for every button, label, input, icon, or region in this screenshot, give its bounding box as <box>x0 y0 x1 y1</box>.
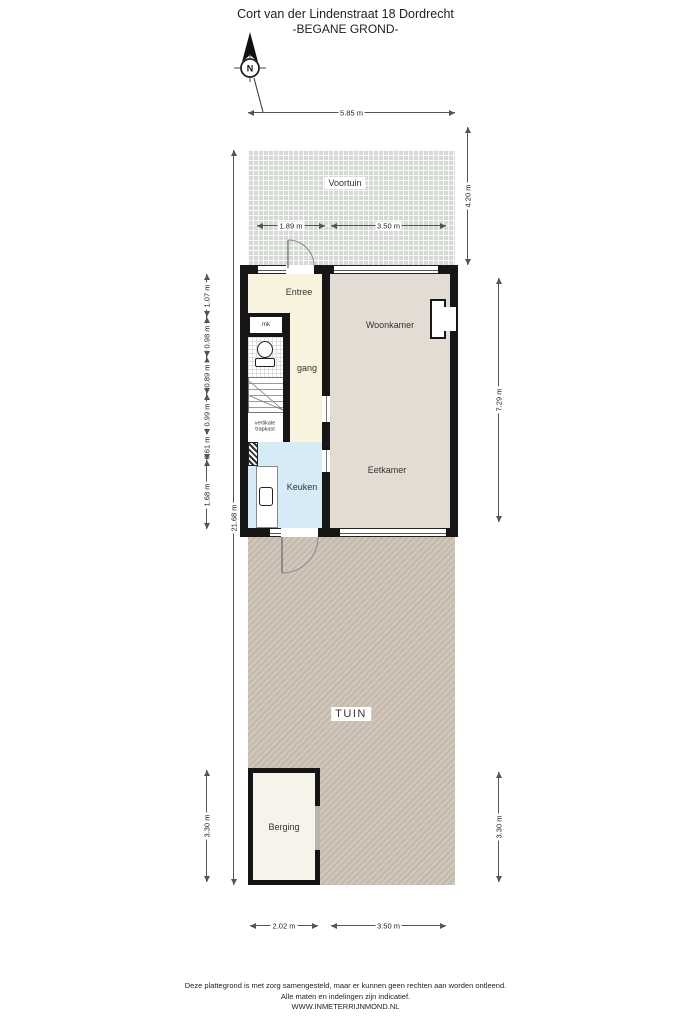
dim-voortuin-right: 3.50 m <box>331 225 446 226</box>
wall-left <box>240 265 248 537</box>
dim-voortuin-depth: 4.20 m <box>467 127 468 265</box>
dim-berging-depth-right: 3.30 m <box>498 772 499 882</box>
dim-label: 2.02 m <box>271 922 298 931</box>
dim-label: 0.99 m <box>203 401 212 428</box>
dim-label: 0.98 m <box>203 324 212 351</box>
dim-label: 1.89 m <box>278 222 305 231</box>
toilet-bowl-icon <box>257 341 273 358</box>
door-front-opening <box>286 265 314 274</box>
window-back-eetkamer <box>340 528 446 537</box>
dim-label: 0.61 m <box>203 434 212 461</box>
window-back-keuken <box>270 528 281 537</box>
dim-plot-width-top: 5.85 m <box>248 112 455 113</box>
dim-label: 3.50 m <box>375 922 402 931</box>
room-label-keuken: Keuken <box>287 482 318 492</box>
dim-left-segment: 0.99 m <box>206 394 207 435</box>
disclaimer-website: WWW.INMETERRIJNMOND.NL <box>0 1002 691 1013</box>
dim-label: 1.07 m <box>203 282 212 309</box>
dim-label: 3.30 m <box>203 813 212 840</box>
dim-left-segment: 1.68 m <box>206 460 207 529</box>
page-subtitle: -BEGANE GROND- <box>0 22 691 36</box>
disclaimer-block: Deze plattegrond is met zorg samengestel… <box>0 981 691 1013</box>
room-label-tuin: TUIN <box>331 707 371 721</box>
compass-north-label: N <box>247 64 254 74</box>
room-label-gang: gang <box>297 363 317 373</box>
dim-label: 0.89 m <box>203 362 212 389</box>
room-label-woonkamer: Woonkamer <box>366 320 414 330</box>
room-label-berging: Berging <box>268 822 299 832</box>
dim-label: 4.20 m <box>464 183 473 210</box>
room-label-voortuin: Voortuin <box>324 177 365 189</box>
door-keuken-eetkamer <box>322 450 330 472</box>
room-label-trapkast: vertikale trapkast <box>248 421 282 434</box>
dim-label: 3.50 m <box>375 222 402 231</box>
dim-voortuin-left: 1.89 m <box>257 225 325 226</box>
door-berging-opening <box>315 806 320 850</box>
dim-plot-depth-total: 21.68 m <box>233 150 234 885</box>
wall-hatched-segment <box>248 442 258 466</box>
dim-left-segment: 1.07 m <box>206 274 207 317</box>
dim-label: 1.68 m <box>203 481 212 508</box>
staircase <box>248 378 283 412</box>
door-gang-woonkamer <box>322 396 330 422</box>
page-title: Cort van der Lindenstraat 18 Dordrecht <box>0 7 691 21</box>
dim-house-depth: 7.29 m <box>498 278 499 522</box>
dim-left-segment: 0.89 m <box>206 357 207 394</box>
dim-label: 7.29 m <box>495 387 504 414</box>
toilet-tank-icon <box>255 358 275 367</box>
chimney-nook-slot <box>444 307 456 331</box>
room-label-eetkamer: Eetkamer <box>368 465 407 475</box>
door-back-opening <box>281 528 318 537</box>
dim-left-segment: 0.61 m <box>206 435 207 460</box>
kitchen-sink-icon <box>259 487 273 506</box>
room-label-entree: Entree <box>286 287 313 297</box>
room-label-meterkast: mk <box>262 322 270 328</box>
dim-berging-width: 2.02 m <box>250 925 318 926</box>
dim-label: 21.68 m <box>230 502 239 533</box>
dim-berging-depth-left: 3.30 m <box>206 770 207 882</box>
dim-left-segment: 0.98 m <box>206 317 207 357</box>
floorplan-canvas: Cort van der Lindenstraat 18 Dordrecht -… <box>0 0 691 1024</box>
north-compass-icon: N <box>228 28 288 118</box>
dim-label: 5.85 m <box>338 109 365 118</box>
voortuin-area <box>248 150 455 265</box>
dim-tuin-width: 3.50 m <box>331 925 446 926</box>
window-front-woonkamer <box>334 265 438 274</box>
wall-right <box>450 265 458 537</box>
window-front-entree <box>258 265 286 274</box>
disclaimer-line1: Deze plattegrond is met zorg samengestel… <box>0 981 691 992</box>
dim-label: 3.30 m <box>495 814 504 841</box>
disclaimer-line2: Alle maten en indelingen zijn indicatief… <box>0 992 691 1003</box>
